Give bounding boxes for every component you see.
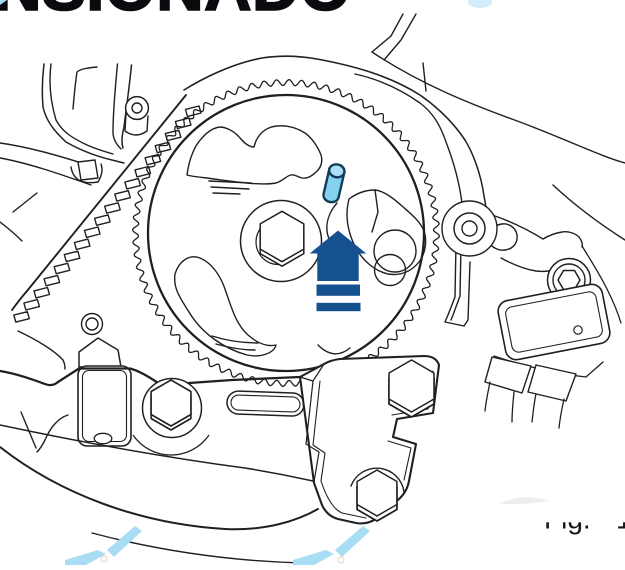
svg-text:NSIONADO: NSIONADO (0, 0, 351, 24)
